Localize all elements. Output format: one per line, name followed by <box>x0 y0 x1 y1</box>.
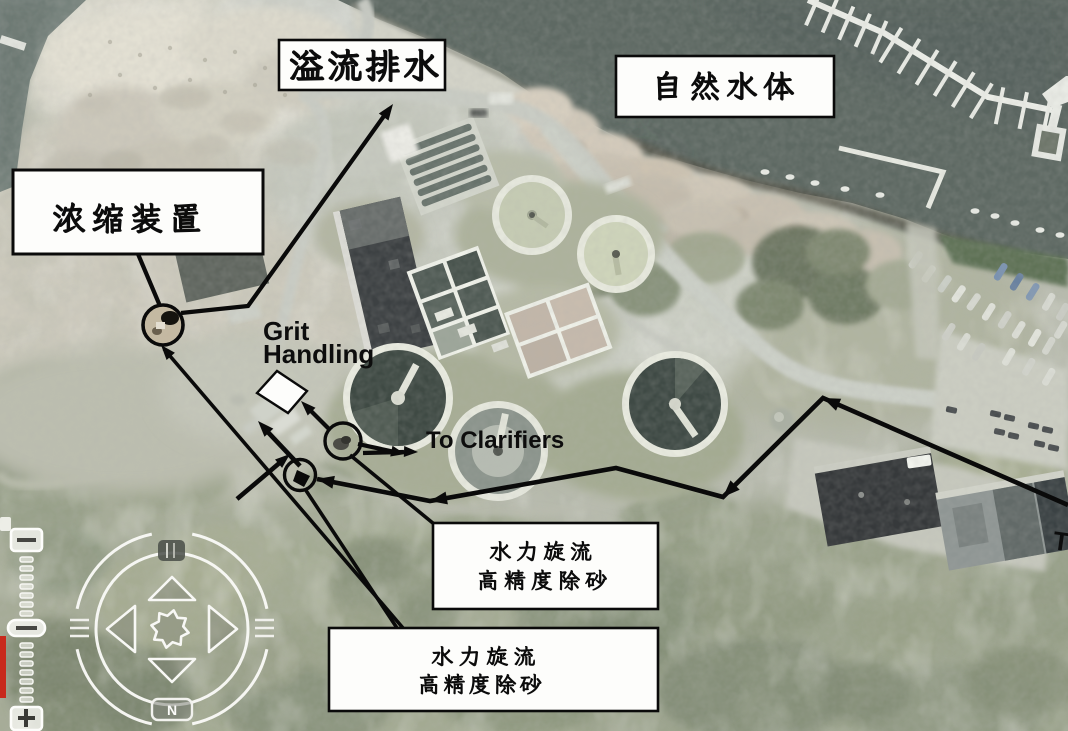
svg-text:To Clarifiers: To Clarifiers <box>426 427 564 454</box>
svg-text:T: T <box>1051 525 1068 557</box>
svg-text:N: N <box>167 702 177 718</box>
svg-text:Handling: Handling <box>263 339 374 369</box>
